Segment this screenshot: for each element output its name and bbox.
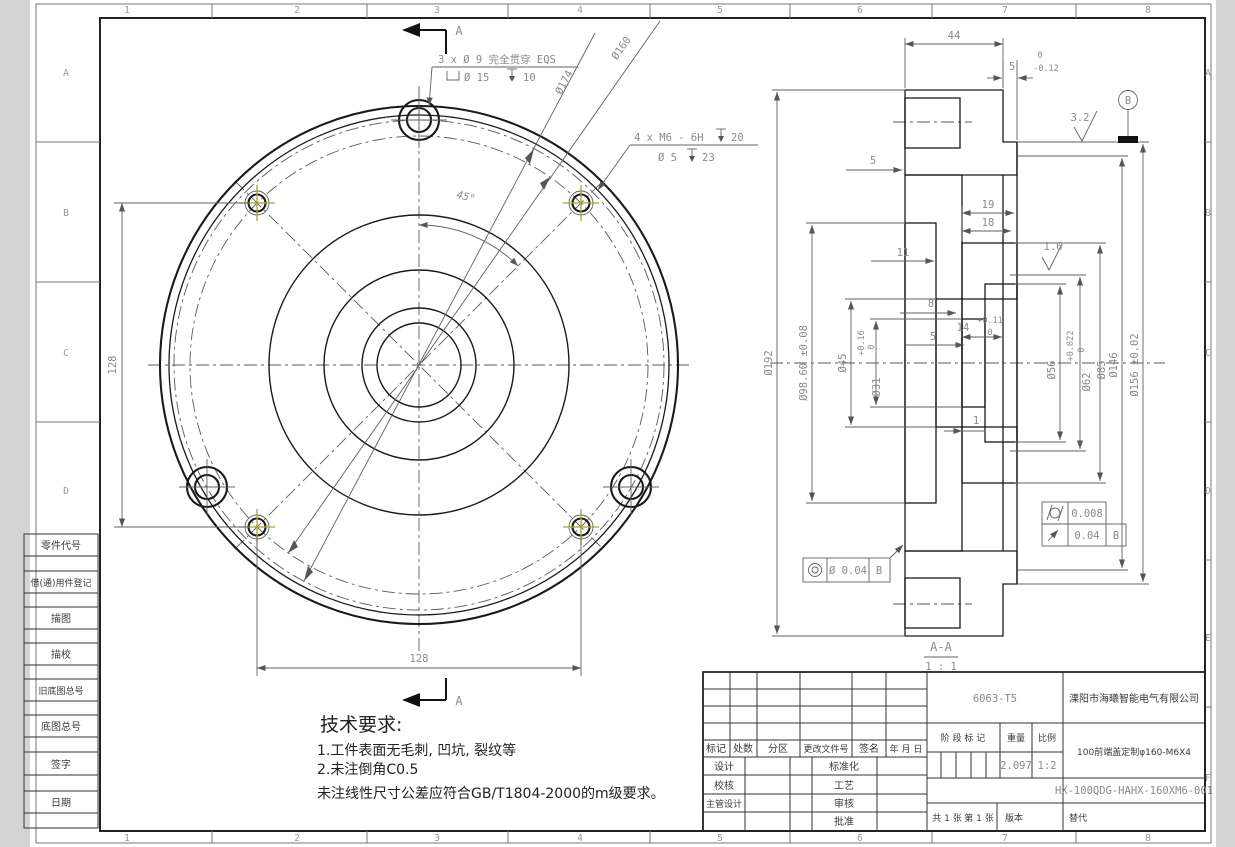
role-chief-design: 主管设计 [706, 798, 742, 810]
dim-8: 8 [928, 298, 934, 310]
drawing-sheet: 1 2 3 4 5 6 7 8 1 2 3 4 5 6 7 8 A B C D … [0, 0, 1235, 847]
hole-note-4x-text: 4 x M6 - 6H [634, 132, 704, 144]
dim-44: 44 [948, 30, 961, 42]
dia-85: Ø85 [1096, 361, 1108, 380]
pilot-depth-text: 23 [702, 152, 715, 164]
dia-62-tol-dn: 0 [1077, 347, 1087, 352]
section-letter-top: A [455, 24, 463, 38]
zone-top-3: 3 [434, 5, 440, 16]
zone-top-8: 8 [1145, 5, 1151, 16]
dia-45: Ø45 [837, 354, 849, 373]
rev-header-zone: 分区 [768, 743, 788, 755]
scale-value: 1:2 [1038, 760, 1057, 772]
zone-bottom-4: 4 [577, 833, 583, 844]
role-check: 校核 [714, 779, 734, 792]
role-approve: 批准 [834, 815, 854, 828]
dim-14-tol-up: +0.11 [977, 316, 1003, 326]
rev-header-sign: 签名 [859, 742, 879, 755]
cbore-dia-text: Ø 15 [464, 72, 489, 84]
dim-5a: 5 [870, 155, 876, 167]
dim-18: 18 [982, 217, 995, 229]
datum-b-letter: B [1125, 95, 1131, 107]
zone-right-E: E [1205, 633, 1211, 644]
pilot-dia-text: Ø 5 [658, 152, 677, 164]
sheet-number: 第 1 张 [964, 812, 993, 824]
rev-header-mark: 标记 [706, 743, 726, 755]
section-letter-bottom: A [455, 694, 463, 708]
dia-146: Ø146 [1108, 352, 1120, 377]
zone-bottom-7: 7 [1002, 833, 1008, 844]
dim-5b: 5 [930, 331, 936, 343]
zone-right-D: D [1205, 486, 1211, 497]
dim-14-tol-dn: 0 [987, 328, 992, 338]
scale-label: 比例 [1038, 732, 1056, 744]
sheet-frame: 1 2 3 4 5 6 7 8 1 2 3 4 5 6 7 8 A B C D … [0, 0, 1235, 847]
label-part-code: 零件代号 [41, 540, 81, 552]
dia-62: Ø62 [1081, 373, 1093, 392]
tech-req-line-1: 1.工件表面无毛刺, 凹坑, 裂纹等 [317, 742, 516, 759]
dia-31: Ø31 [871, 378, 883, 397]
dim-128-h-text: 128 [410, 653, 429, 665]
section-aa-text: A-A [930, 640, 952, 654]
dim-lip-5: 5 [1009, 61, 1015, 73]
zone-left-A: A [63, 68, 69, 79]
runout-datum: B [1113, 530, 1119, 542]
label-signature: 签字 [51, 758, 71, 771]
paper [30, 0, 1216, 847]
zone-left-B: B [63, 208, 69, 219]
role-review: 审核 [834, 797, 854, 810]
label-trace-check: 描校 [51, 648, 71, 661]
tech-req-line-3: 未注线性尺寸公差应符合GB/T1804-2000的m级要求。 [317, 785, 665, 802]
material-spec: 6063-T5 [973, 693, 1017, 705]
finish-1-6-value: 1.6 [1044, 241, 1063, 253]
role-standardization: 标准化 [829, 760, 859, 773]
role-design: 设计 [714, 760, 734, 773]
cad-drawing-canvas: 1 2 3 4 5 6 7 8 1 2 3 4 5 6 7 8 A B C D … [0, 0, 1235, 847]
concentricity-datum: B [876, 565, 882, 577]
zone-top-6: 6 [857, 5, 863, 16]
dim-lip-tol-up: 0 [1037, 51, 1042, 61]
concentricity-value: Ø 0.04 [829, 565, 867, 577]
zone-right-B: B [1205, 208, 1211, 219]
zone-left-D: D [63, 486, 69, 497]
label-old-master-no: 旧底图总号 [38, 685, 83, 697]
part-name: 100前端盖定制φ160-M6X4 [1077, 746, 1191, 758]
dia-156: Ø156 ±0.02 [1129, 333, 1141, 396]
rev-header-date: 年 月 日 [890, 743, 923, 755]
dia-192: Ø192 [763, 350, 775, 375]
zone-bottom-8: 8 [1145, 833, 1151, 844]
drawing-number: HX-100QDG-HAHX-160XM6-001 [1055, 785, 1213, 797]
zone-top-1: 1 [124, 5, 130, 16]
dia-56: Ø56 [1046, 361, 1058, 380]
label-tracing: 描图 [51, 612, 71, 625]
finish-3-2-value: 3.2 [1071, 112, 1090, 124]
dim-1: 1 [973, 415, 979, 427]
rev-header-doc-no: 更改文件号 [803, 743, 848, 755]
rev-header-count: 处数 [733, 742, 753, 755]
dia-98-60: Ø98.60 ±0.08 [798, 325, 810, 401]
datum-base [1118, 136, 1138, 143]
dim-11: 11 [897, 247, 910, 259]
weight-label: 重量 [1007, 732, 1025, 744]
hole-note-3x-text: 3 x Ø 9 完全贯穿 EQS [438, 53, 556, 66]
zone-top-2: 2 [294, 5, 300, 16]
dim-128-v-text: 128 [107, 356, 119, 375]
substitute-label: 替代 [1069, 812, 1087, 824]
cbore-depth-text: 10 [523, 72, 536, 84]
dia-31-tol-dn: 0 [867, 344, 877, 349]
label-borrowed-parts: 借(通)用件登记 [30, 577, 91, 589]
label-master-no: 底图总号 [41, 720, 81, 733]
tech-req-title: 技术要求: [320, 714, 402, 736]
runout-value: 0.04 [1074, 530, 1099, 542]
dim-19: 19 [982, 199, 995, 211]
zone-bottom-5: 5 [717, 833, 723, 844]
dia-31-tol-up: +0.16 [857, 330, 867, 356]
zone-bottom-2: 2 [294, 833, 300, 844]
dia-62-tol-up: +0.022 [1066, 331, 1076, 362]
zone-bottom-1: 1 [124, 833, 130, 844]
zone-right-F: F [1205, 773, 1211, 784]
zone-top-5: 5 [717, 5, 723, 16]
zone-bottom-6: 6 [857, 833, 863, 844]
tech-req-line-2: 2.未注倒角C0.5 [317, 762, 418, 778]
m6-depth-text: 20 [731, 132, 744, 144]
zone-right-C: C [1205, 348, 1211, 359]
cylindricity-value: 0.008 [1071, 508, 1103, 520]
dim-lip-tol-dn: -0.12 [1033, 64, 1059, 74]
zone-bottom-3: 3 [434, 833, 440, 844]
dim-14: 14 [957, 322, 970, 334]
zone-top-7: 7 [1002, 5, 1008, 16]
zone-top-4: 4 [577, 5, 583, 16]
weight-value: 2.097 [1000, 760, 1032, 772]
sheets-total: 共 1 张 [932, 813, 961, 824]
zone-left-C: C [63, 348, 69, 359]
version-label: 版本 [1005, 812, 1023, 824]
stage-mark-label: 阶 段 标 记 [941, 732, 986, 744]
company-name: 溧阳市海曦智能电气有限公司 [1069, 692, 1199, 705]
label-date: 日期 [51, 797, 71, 809]
role-process: 工艺 [834, 780, 854, 792]
zone-right-A: A [1205, 68, 1211, 79]
